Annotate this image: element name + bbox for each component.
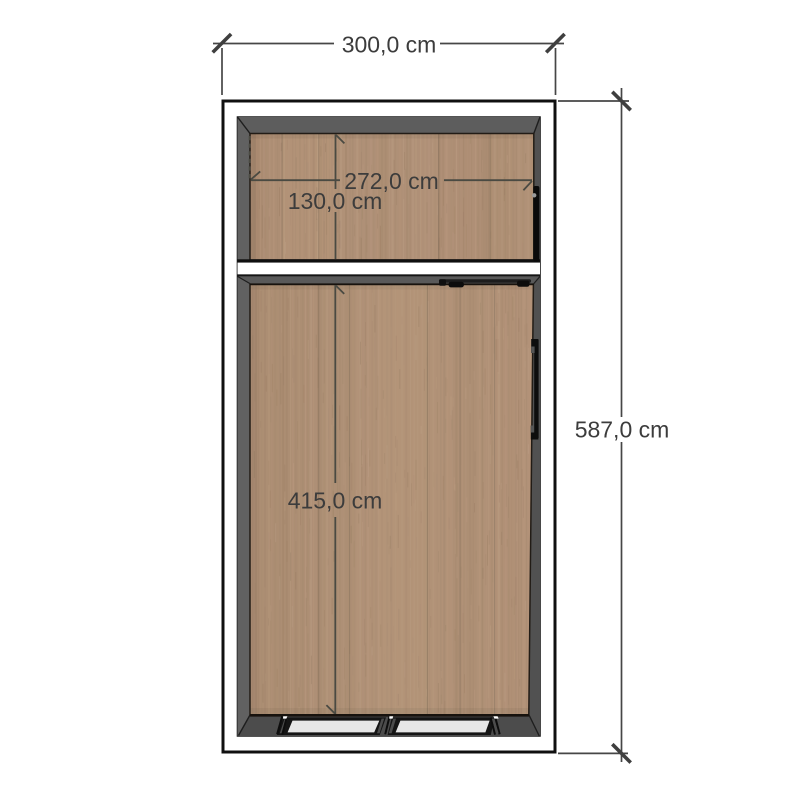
svg-text:587,0 cm: 587,0 cm xyxy=(575,417,670,443)
svg-text:415,0 cm: 415,0 cm xyxy=(288,488,383,514)
svg-text:130,0 cm: 130,0 cm xyxy=(288,188,383,214)
svg-text:300,0 cm: 300,0 cm xyxy=(342,32,437,58)
